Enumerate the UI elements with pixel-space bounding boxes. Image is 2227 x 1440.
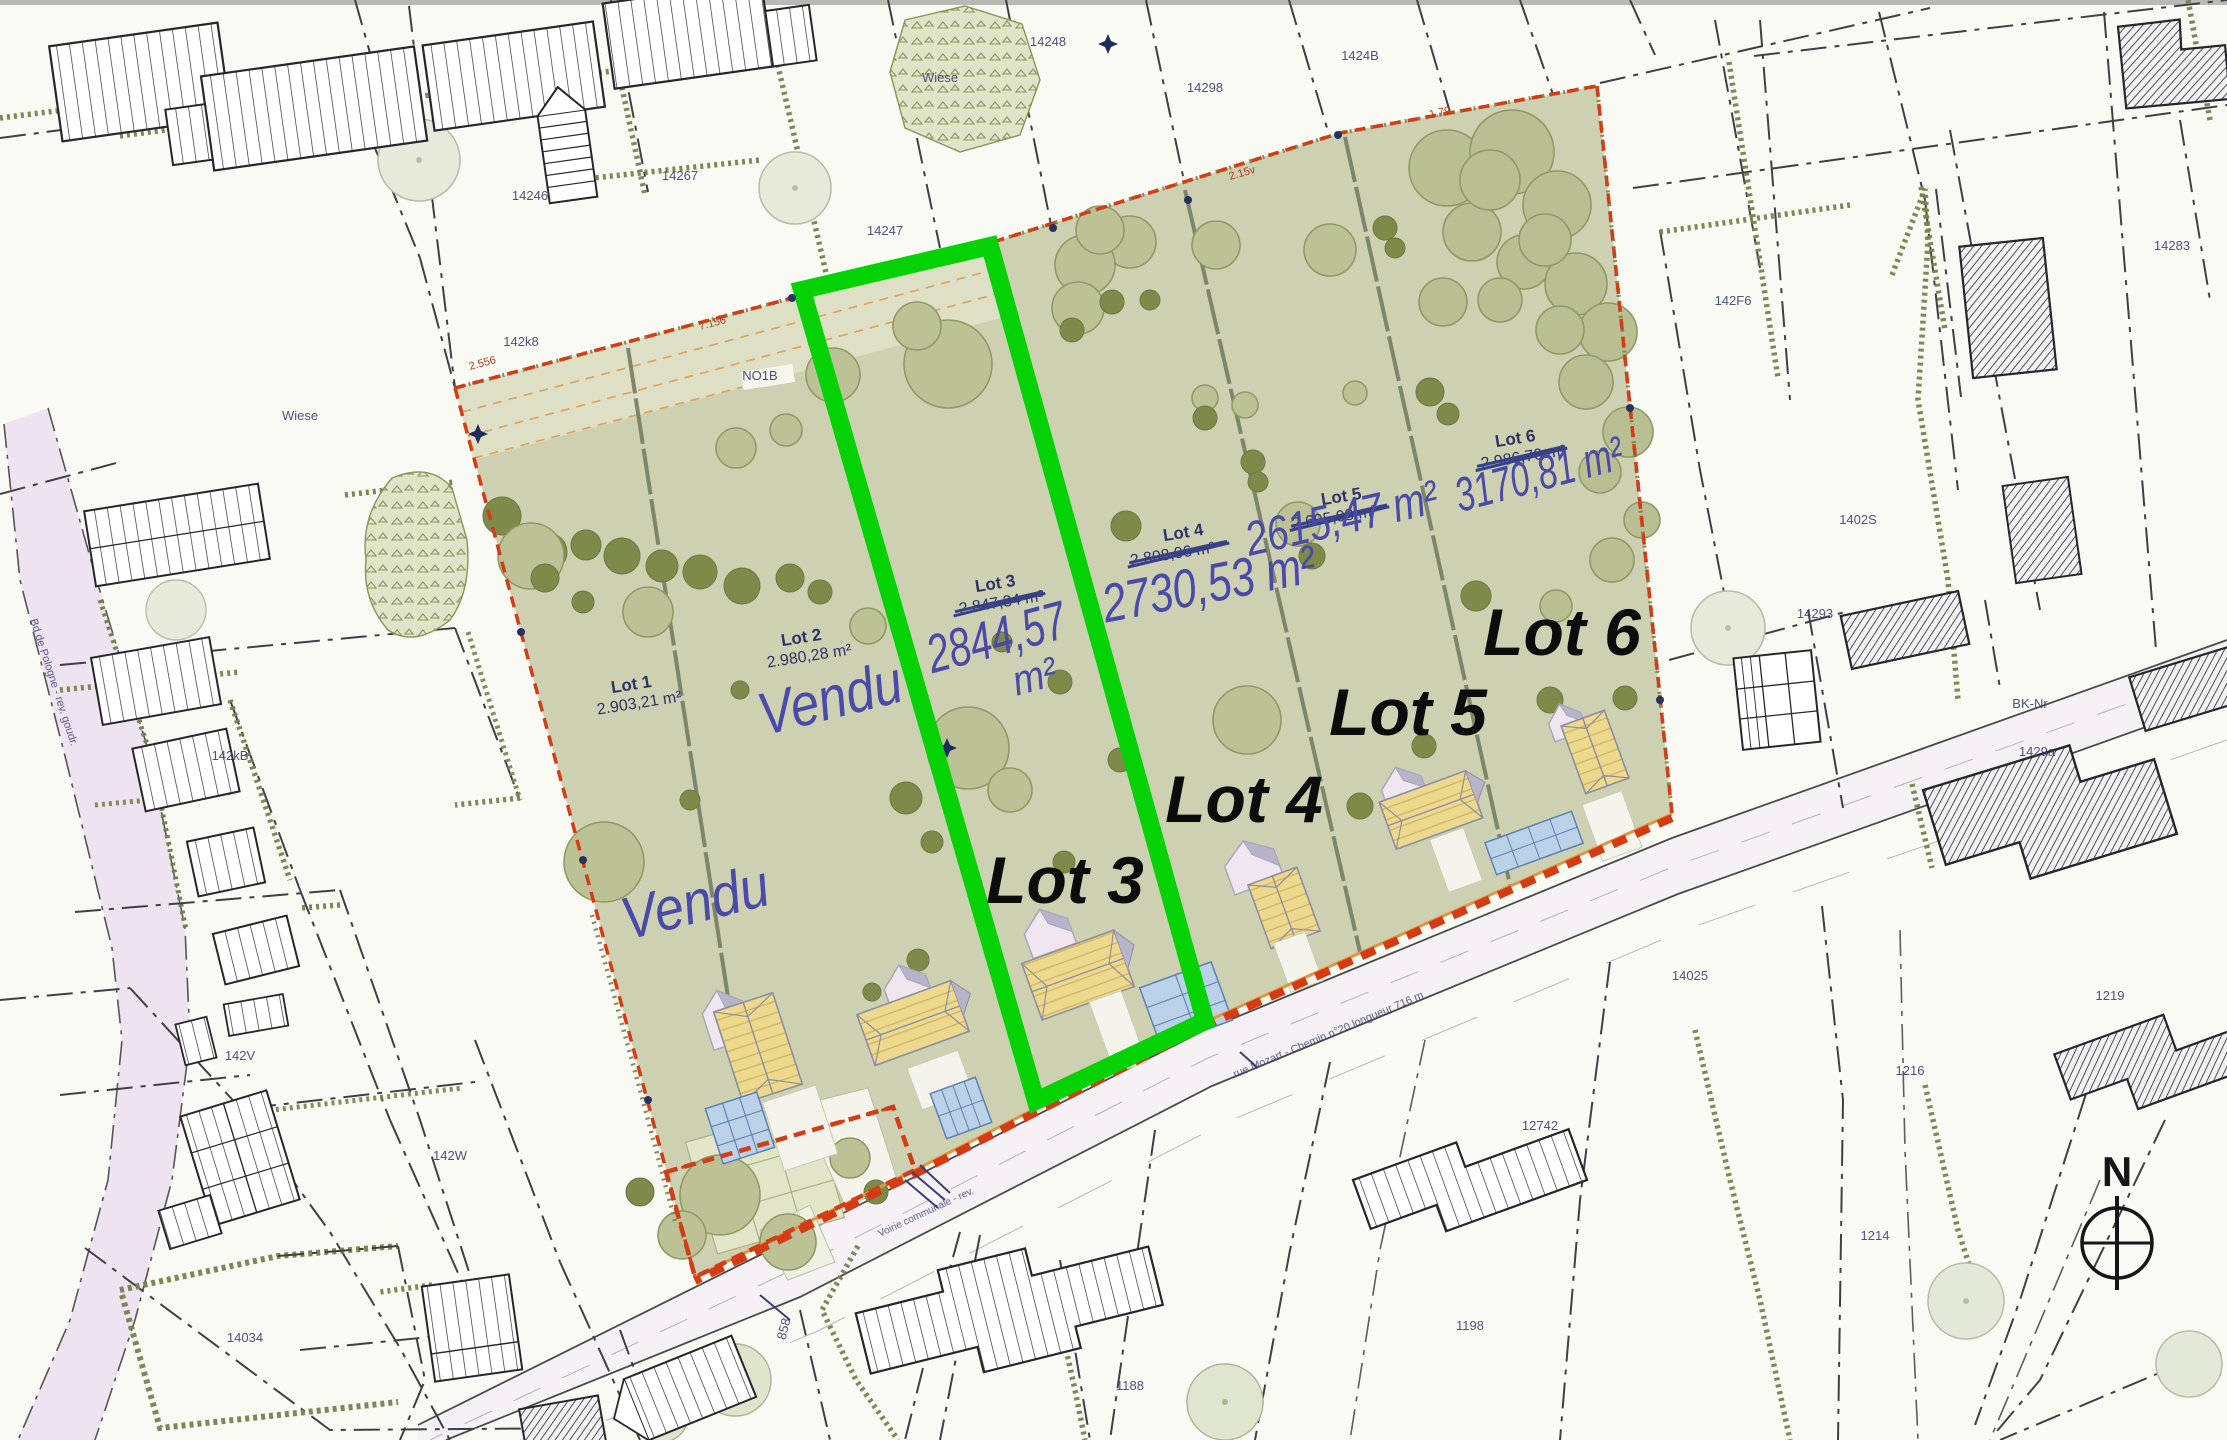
svg-text:14293: 14293 xyxy=(1797,606,1833,621)
svg-text:Lot 4: Lot 4 xyxy=(1165,762,1323,836)
svg-text:Lot 3: Lot 3 xyxy=(986,843,1144,917)
svg-text:Lot 5: Lot 5 xyxy=(1329,675,1488,749)
svg-text:14034: 14034 xyxy=(227,1330,263,1345)
svg-text:BK-Nr: BK-Nr xyxy=(2012,696,2048,711)
svg-text:1188: 1188 xyxy=(1116,1378,1144,1393)
svg-text:142k8: 142k8 xyxy=(503,334,538,349)
svg-text:1214: 1214 xyxy=(1861,1228,1890,1243)
svg-text:14298: 14298 xyxy=(1187,80,1223,95)
svg-text:1402S: 1402S xyxy=(1839,512,1877,527)
svg-text:14247: 14247 xyxy=(867,223,903,238)
svg-text:142V: 142V xyxy=(225,1048,256,1063)
svg-text:142F6: 142F6 xyxy=(1715,293,1752,308)
svg-text:Wiese: Wiese xyxy=(282,408,318,423)
svg-text:1429a: 1429a xyxy=(2019,744,2056,759)
svg-text:14025: 14025 xyxy=(1672,968,1708,983)
svg-text:N: N xyxy=(2102,1148,2132,1195)
svg-text:14267: 14267 xyxy=(662,168,698,183)
svg-text:14248: 14248 xyxy=(1030,34,1066,49)
svg-text:12742: 12742 xyxy=(1522,1118,1558,1133)
svg-text:NO1B: NO1B xyxy=(742,368,777,383)
svg-text:1198: 1198 xyxy=(1456,1318,1484,1333)
svg-text:14283: 14283 xyxy=(2154,238,2190,253)
svg-text:Wiese: Wiese xyxy=(922,70,958,85)
svg-text:Lot 6: Lot 6 xyxy=(1483,595,1642,669)
svg-text:14246: 14246 xyxy=(512,188,548,203)
svg-text:1219: 1219 xyxy=(2096,988,2125,1003)
svg-text:1216: 1216 xyxy=(1896,1063,1925,1078)
svg-text:1424B: 1424B xyxy=(1341,48,1379,63)
svg-text:142kB: 142kB xyxy=(212,748,249,763)
svg-text:142W: 142W xyxy=(433,1148,468,1163)
